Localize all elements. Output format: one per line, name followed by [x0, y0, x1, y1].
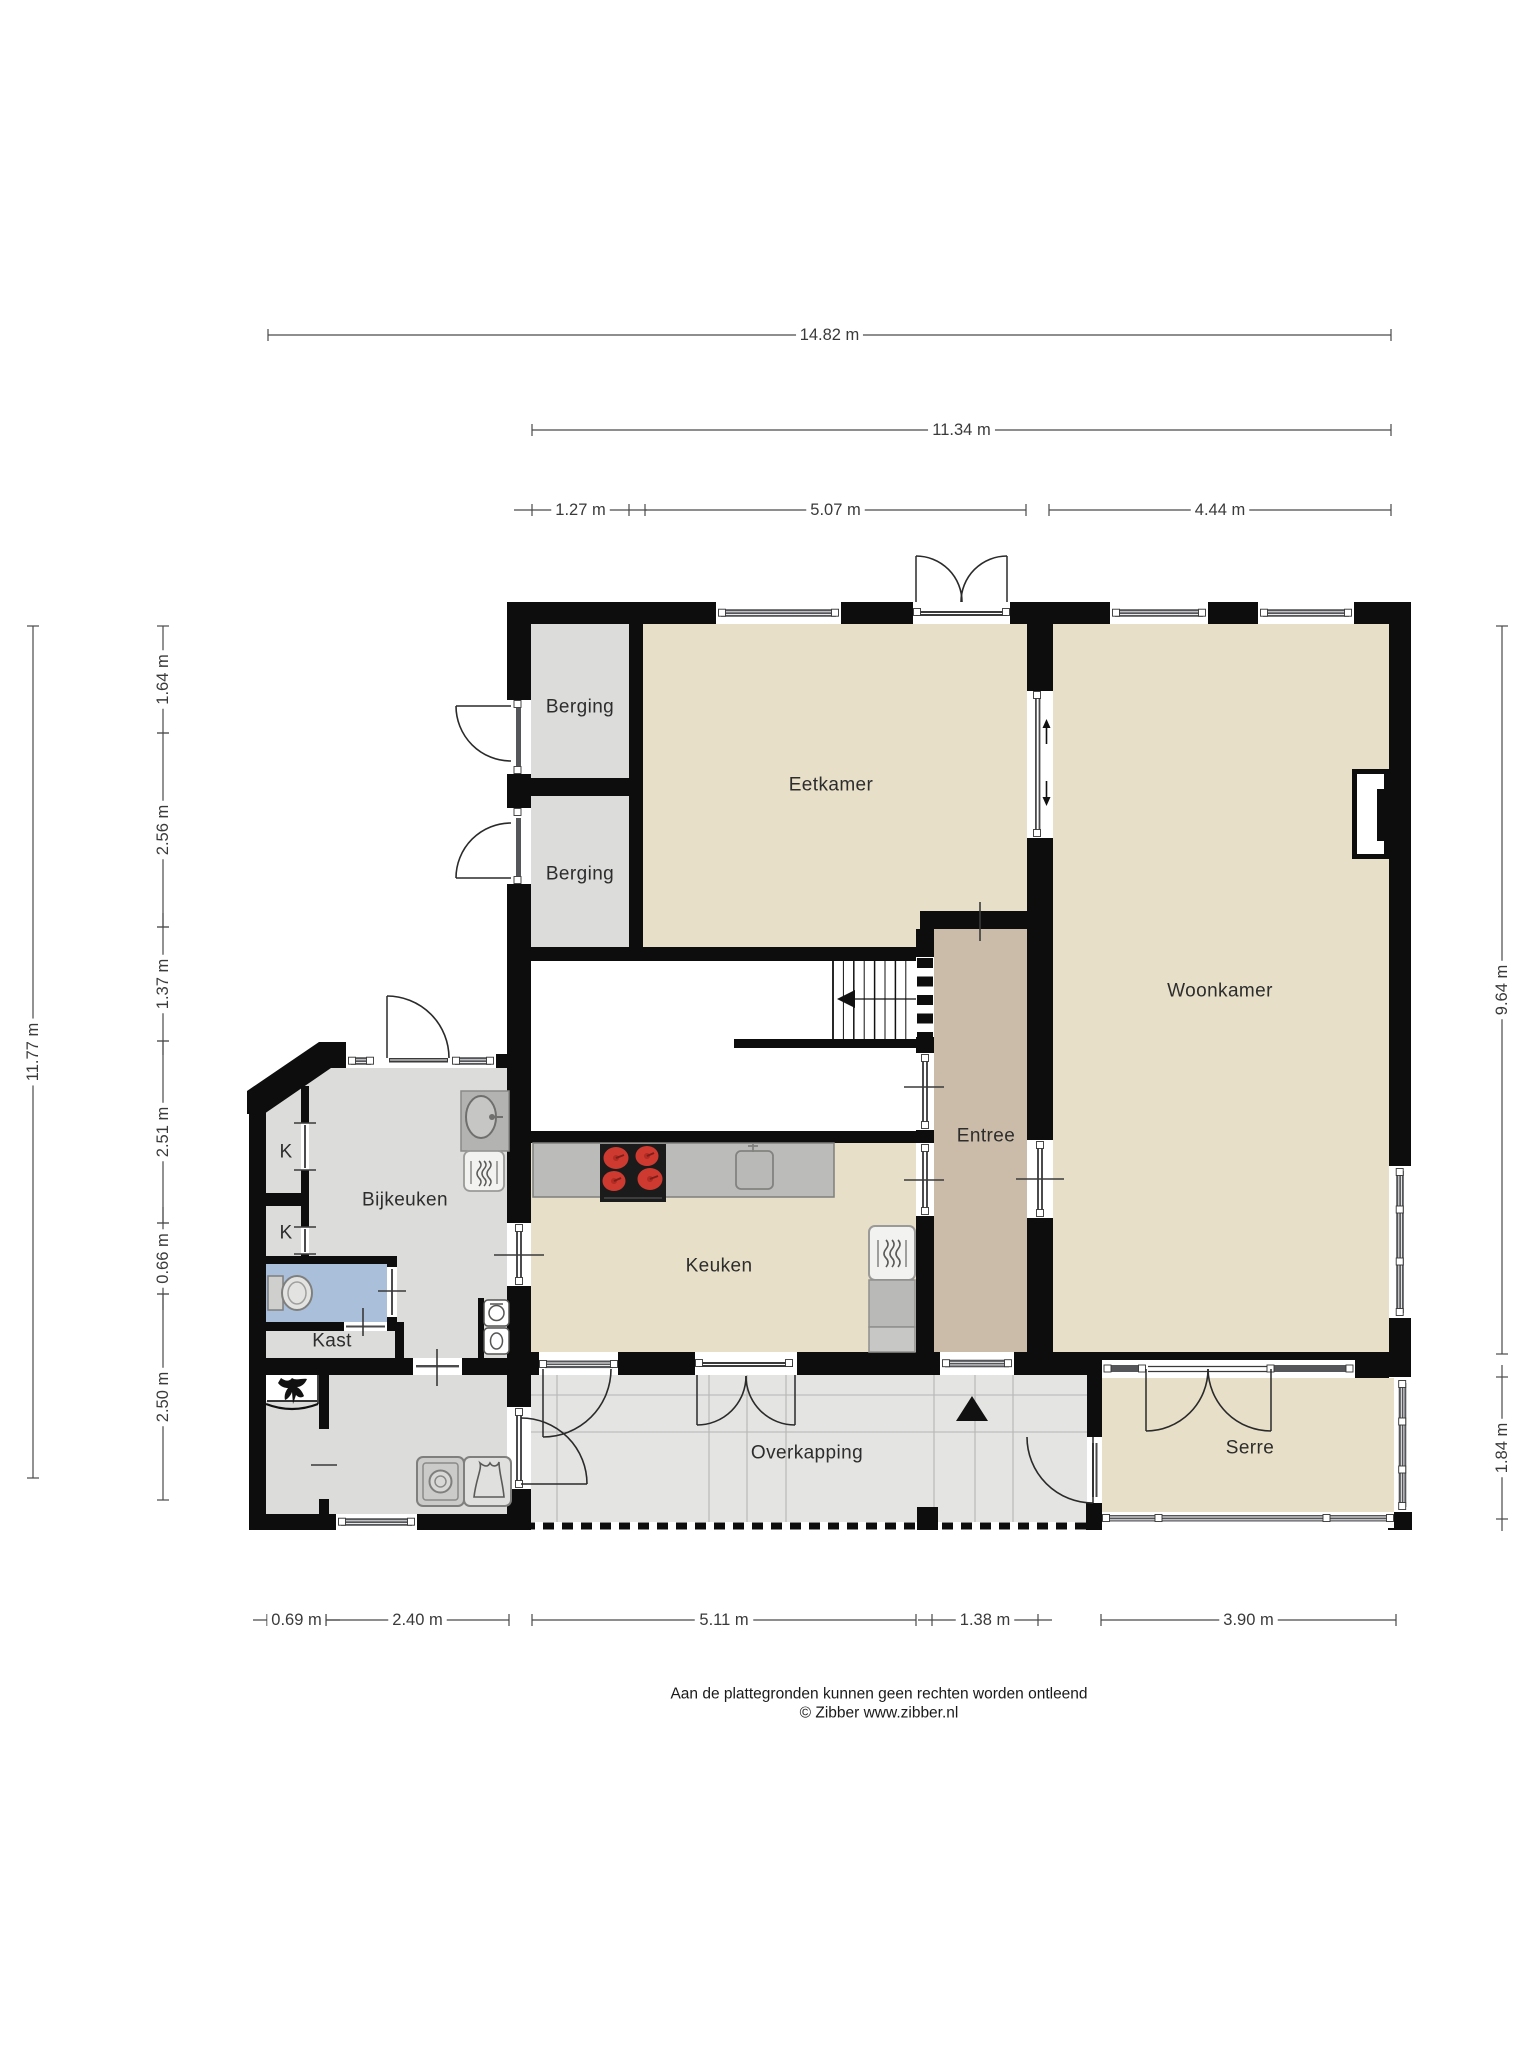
svg-text:1.38 m: 1.38 m — [960, 1611, 1010, 1629]
svg-text:2.50 m: 2.50 m — [154, 1372, 172, 1422]
svg-text:Bijkeuken: Bijkeuken — [362, 1190, 448, 1211]
svg-text:Berging: Berging — [546, 697, 614, 718]
svg-text:5.11 m: 5.11 m — [699, 1611, 748, 1629]
svg-text:1.84 m: 1.84 m — [1493, 1423, 1511, 1473]
svg-text:K: K — [279, 1223, 292, 1244]
svg-text:K: K — [279, 1142, 292, 1163]
svg-text:© Zibber www.zibber.nl: © Zibber www.zibber.nl — [800, 1705, 959, 1722]
svg-text:Eetkamer: Eetkamer — [789, 775, 874, 796]
svg-text:2.40 m: 2.40 m — [392, 1611, 442, 1629]
svg-text:1.64 m: 1.64 m — [154, 654, 172, 704]
svg-text:3.90 m: 3.90 m — [1223, 1611, 1273, 1629]
svg-text:Aan de plattegronden kunnen ge: Aan de plattegronden kunnen geen rechten… — [670, 1686, 1087, 1703]
svg-text:Overkapping: Overkapping — [751, 1443, 863, 1464]
svg-text:11.77 m: 11.77 m — [24, 1023, 42, 1081]
svg-text:1.27 m: 1.27 m — [555, 501, 605, 519]
svg-text:0.66 m: 0.66 m — [154, 1233, 172, 1283]
svg-text:Woonkamer: Woonkamer — [1167, 981, 1273, 1002]
svg-text:Kast: Kast — [312, 1331, 352, 1352]
svg-text:14.82 m: 14.82 m — [800, 326, 860, 344]
svg-text:Berging: Berging — [546, 864, 614, 885]
svg-text:2.51 m: 2.51 m — [154, 1107, 172, 1157]
svg-text:9.64 m: 9.64 m — [1493, 965, 1511, 1015]
svg-text:1.37 m: 1.37 m — [154, 959, 172, 1009]
svg-text:5.07 m: 5.07 m — [810, 501, 860, 519]
svg-text:Serre: Serre — [1226, 1438, 1274, 1459]
svg-text:2.56 m: 2.56 m — [154, 805, 172, 855]
svg-text:11.34 m: 11.34 m — [932, 421, 990, 439]
svg-text:0.69 m: 0.69 m — [271, 1611, 321, 1629]
svg-text:4.44 m: 4.44 m — [1195, 501, 1245, 519]
svg-text:Keuken: Keuken — [686, 1256, 753, 1277]
svg-text:Entree: Entree — [957, 1126, 1015, 1147]
